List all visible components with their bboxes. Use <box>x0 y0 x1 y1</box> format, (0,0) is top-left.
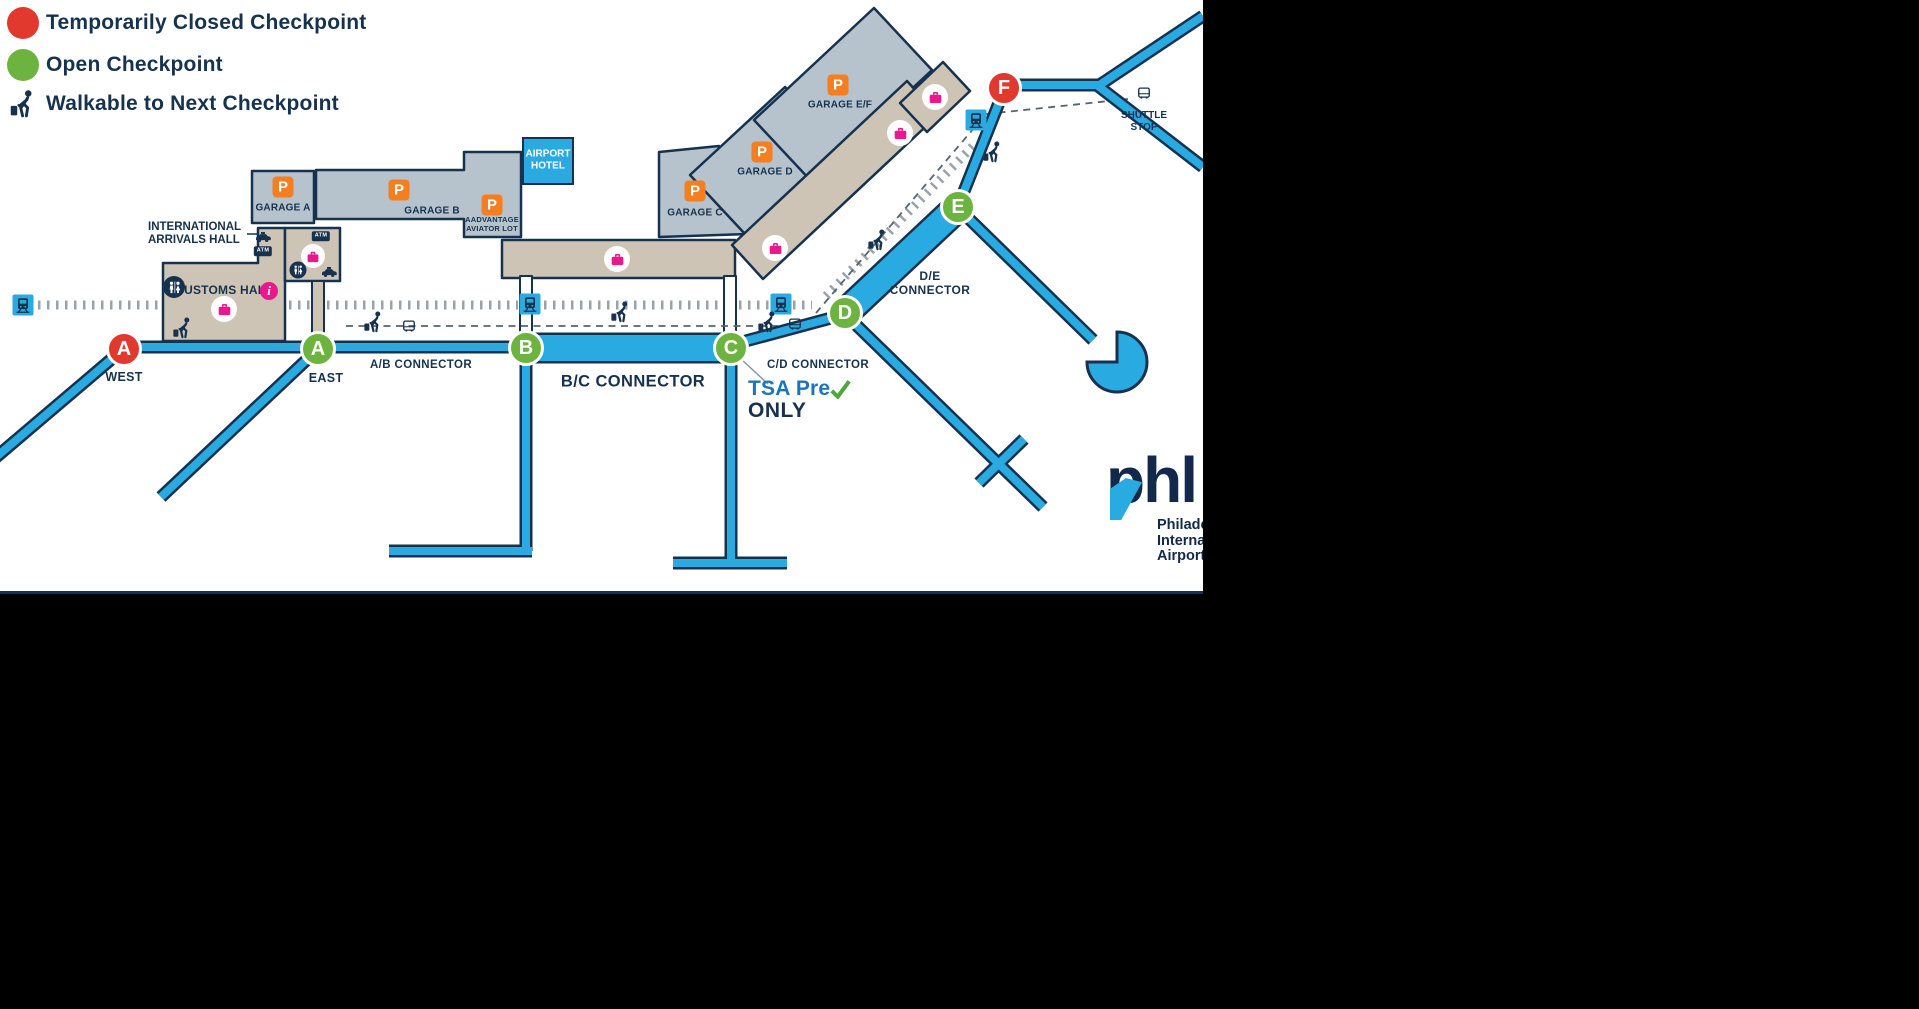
bus-icon-shuttle-stop <box>1137 87 1152 100</box>
airport-hotel-label: AIRPORT HOTEL <box>524 149 572 172</box>
tsa-check-icon <box>830 379 851 399</box>
baggage-icon-terminal-de-north <box>887 120 913 146</box>
de-connector-label: D/E CONNECTOR <box>888 270 972 298</box>
taxi-icon-customs <box>255 231 272 244</box>
atm-icon-customs: ATM <box>254 246 272 256</box>
atm-icon-terminal-a: ATM <box>312 231 330 241</box>
tsa-pre-only-note: TSA Pre ONLY <box>748 378 851 422</box>
bc-connector-label: B/C CONNECTOR <box>561 373 705 392</box>
baggage-icon-terminal-a <box>301 244 325 268</box>
legend-open-label: Open Checkpoint <box>46 53 223 77</box>
garage-b-label: GARAGE B <box>404 206 460 217</box>
walking-person-icon-ab <box>362 311 385 334</box>
parking-icon-garage-ef: P <box>828 75 849 96</box>
taxi-icon-terminal-a <box>321 266 338 279</box>
checkpoint-b: B <box>508 330 544 366</box>
baggage-icon-terminal-de-south <box>762 235 788 261</box>
map-base-graphics <box>0 0 1203 594</box>
walking-person-icon-de <box>866 229 889 252</box>
map-bottom-border <box>0 591 1203 594</box>
parking-icon-aviator-lot: P <box>482 195 503 216</box>
baggage-icon-ticketing <box>604 246 630 272</box>
tsa-pre-label: TSA Pre <box>748 377 830 400</box>
checkpoint-d: D <box>827 295 863 331</box>
checkpoint-a-west-sublabel: WEST <box>105 370 142 384</box>
intl-arrivals-hall-label: INTERNATIONAL ARRIVALS HALL <box>148 221 254 247</box>
restroom-icon-customs <box>163 276 185 298</box>
parking-icon-garage-d: P <box>752 142 773 163</box>
garage-c-label: GARAGE C <box>667 208 723 219</box>
closed-checkpoint-dot <box>7 7 39 39</box>
customs-hall-label: CUSTOMS HALL <box>175 283 273 297</box>
tsa-only-label: ONLY <box>748 399 806 422</box>
open-checkpoint-dot <box>7 49 39 81</box>
aviator-lot-label: AADVANTAGE AVIATOR LOT <box>459 215 525 233</box>
walking-person-icon-cd <box>756 311 779 334</box>
cd-connector-label: C/D CONNECTOR <box>767 359 869 371</box>
checkpoint-a-east: A <box>300 331 336 367</box>
screen: Temporarily Closed Checkpoint Open Check… <box>0 0 1919 1009</box>
legend-walkable-label: Walkable to Next Checkpoint <box>46 92 339 116</box>
parking-icon-garage-b: P <box>389 180 410 201</box>
bus-icon-cd <box>788 318 803 331</box>
checkpoint-c: C <box>713 330 749 366</box>
baggage-icon-terminal-f <box>922 84 948 110</box>
ab-connector-label: A/B CONNECTOR <box>370 359 472 371</box>
shuttle-stop-label: SHUTTLE STOP <box>1116 110 1172 134</box>
walking-person-icon-ef <box>981 141 1004 164</box>
garage-ef-label: GARAGE E/F <box>808 100 872 111</box>
checkpoint-a-west: A <box>106 331 142 367</box>
garage-d-label: GARAGE D <box>737 167 793 178</box>
road-turnaround <box>1087 332 1147 392</box>
parking-icon-garage-a: P <box>273 177 294 198</box>
checkpoint-f: F <box>986 70 1022 106</box>
legend-closed-label: Temporarily Closed Checkpoint <box>46 11 366 35</box>
walking-person-icon-bc <box>609 301 632 324</box>
train-station-icon-b <box>520 294 541 315</box>
garage-a-label: GARAGE A <box>255 203 310 214</box>
walking-person-icon-customs <box>171 317 194 340</box>
walking-person-icon <box>7 89 37 119</box>
checkpoint-e: E <box>940 189 976 225</box>
baggage-icon-customs <box>211 296 237 322</box>
info-icon-customs: i <box>260 282 278 300</box>
train-station-icon-west <box>13 295 34 316</box>
phl-logo-name: Philadelphia International Airport <box>1157 518 1203 565</box>
parking-icon-garage-c: P <box>685 181 706 202</box>
airport-terminal-map: Temporarily Closed Checkpoint Open Check… <box>0 0 1203 594</box>
checkpoint-a-east-sublabel: EAST <box>309 371 344 385</box>
train-station-icon-f <box>966 110 987 131</box>
bus-icon-ab <box>402 320 417 333</box>
